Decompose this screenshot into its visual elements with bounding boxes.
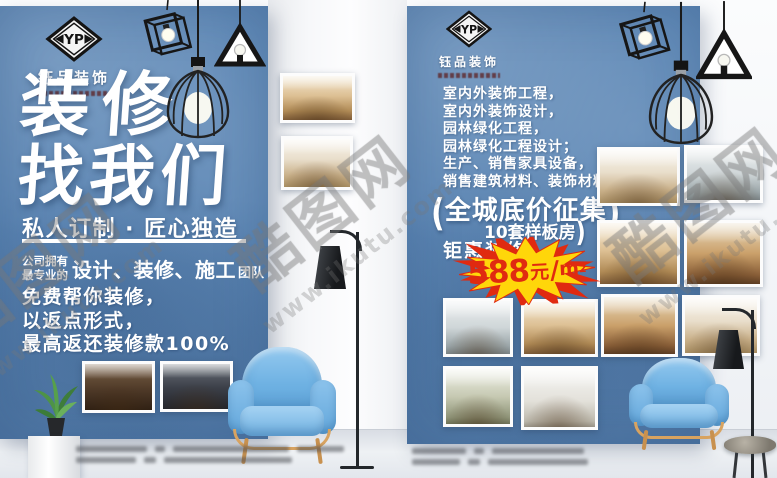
interior-photo bbox=[82, 361, 155, 413]
team-suffix: 团队 bbox=[238, 262, 264, 281]
logo-initials: YP bbox=[63, 32, 84, 48]
price-starburst: 588元/m2 bbox=[445, 233, 608, 309]
tagline-underline bbox=[22, 239, 246, 243]
interior-photo bbox=[281, 136, 353, 190]
diamond-logo-icon: YP bbox=[45, 16, 103, 62]
interior-photo bbox=[521, 299, 598, 357]
team-prefix-line2: 最专业的 bbox=[22, 269, 68, 283]
interior-photo bbox=[280, 73, 355, 123]
logo-subtext-blurred bbox=[438, 73, 500, 78]
headline-line2: 找我们 bbox=[16, 144, 234, 210]
potted-plant bbox=[30, 368, 82, 438]
poster-preview: YP 钰品装饰 装修 找我们 私人订制 · 匠心独造 公司拥有 最专业的 设计、… bbox=[0, 0, 777, 478]
team-row: 公司拥有 最专业的 设计、装修、施工 团队 bbox=[22, 252, 264, 283]
interior-photo bbox=[684, 145, 763, 203]
service-item: 生产、销售家具设备， bbox=[443, 156, 623, 174]
plant-pedestal bbox=[28, 436, 80, 478]
price-unit-sup: 2 bbox=[579, 261, 587, 274]
price-unit: m bbox=[559, 257, 580, 280]
armchair bbox=[629, 358, 729, 450]
body-line-1: 免费帮你装修， bbox=[22, 282, 166, 309]
price-text: 588元/m2 bbox=[445, 233, 608, 309]
side-stool bbox=[724, 436, 776, 478]
service-item: 园林绿化工程， bbox=[443, 121, 623, 139]
interior-photo bbox=[521, 366, 598, 430]
brand-name: 钰品装饰 bbox=[430, 53, 508, 70]
price-currency: 元 bbox=[529, 256, 549, 284]
service-item: 园林绿化工程设计； bbox=[443, 139, 623, 157]
price-amount: 588 bbox=[466, 253, 530, 292]
diamond-logo-icon: YP bbox=[446, 10, 492, 48]
brand-logo: YP 钰品装饰 bbox=[430, 10, 508, 78]
team-prefix-line1: 公司拥有 bbox=[22, 255, 68, 269]
interior-photo bbox=[597, 220, 680, 287]
logo-initials: YP bbox=[460, 23, 477, 36]
contact-info-blurred bbox=[76, 446, 344, 468]
contact-info-blurred bbox=[412, 448, 592, 470]
interior-photo bbox=[684, 220, 763, 287]
services-list: 室内外装饰工程， 室内外装饰设计， 园林绿化工程， 园林绿化工程设计； 生产、销… bbox=[443, 86, 623, 192]
interior-photo bbox=[443, 366, 513, 427]
interior-photo bbox=[597, 147, 680, 206]
triangle-pendant-lamp-icon bbox=[214, 0, 266, 72]
service-item: 销售建筑材料、装饰材料， bbox=[443, 174, 623, 192]
body-line-3: 最高返还装修款100% bbox=[22, 329, 230, 356]
headline-line1: 装修 bbox=[18, 70, 187, 140]
interior-photo bbox=[160, 361, 233, 412]
service-item: 室内外装饰设计， bbox=[443, 104, 623, 122]
team-prefix: 公司拥有 最专业的 bbox=[22, 255, 68, 282]
triangle-pendant-lamp-icon bbox=[696, 0, 752, 84]
team-main: 设计、装修、施工 bbox=[72, 254, 236, 283]
promo-open-bracket: ( bbox=[431, 192, 445, 236]
interior-photo bbox=[601, 294, 678, 357]
service-item: 室内外装饰工程， bbox=[443, 86, 623, 104]
